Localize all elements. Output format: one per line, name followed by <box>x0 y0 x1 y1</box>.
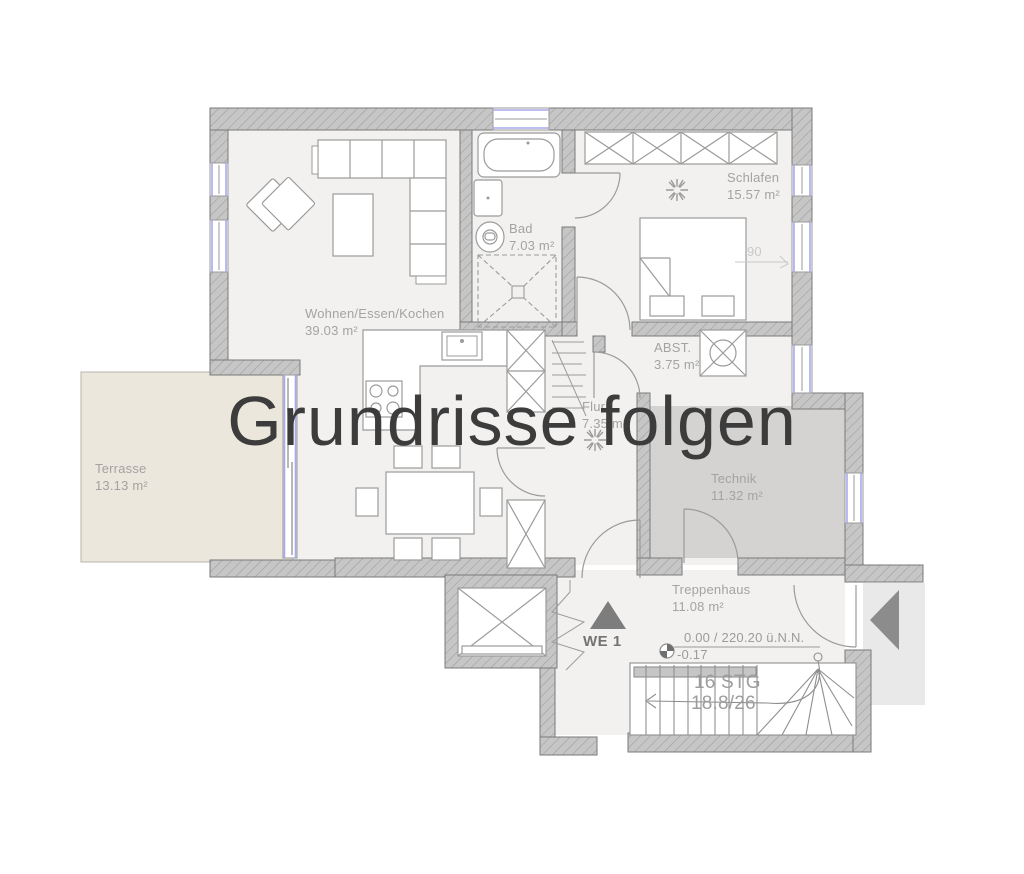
elevation-lower-label: -0.17 <box>677 647 708 664</box>
room-area: 3.75 m² <box>654 357 699 374</box>
room-label-technik: Technik 11.32 m² <box>711 471 763 504</box>
room-name: Terrasse <box>95 461 146 476</box>
room-area: 39.03 m² <box>305 323 444 340</box>
elevation-upper-label: 0.00 / 220.20 ü.N.N. <box>684 630 804 647</box>
room-label-terrasse: Terrasse 13.13 m² <box>95 461 148 494</box>
room-name: Bad <box>509 221 533 236</box>
room-area: 15.57 m² <box>727 187 780 204</box>
window-icon <box>210 220 228 272</box>
room-area: 11.08 m² <box>672 599 750 616</box>
toilet-icon <box>476 222 504 252</box>
window-icon <box>792 222 812 272</box>
room-label-wohnen: Wohnen/Essen/Kochen 39.03 m² <box>305 306 444 339</box>
room-label-bad: Bad 7.03 m² <box>509 221 554 254</box>
washbasin-icon <box>474 180 502 216</box>
stairs-dimension-label: 18.8/26 <box>691 692 756 716</box>
coffee-table <box>333 194 373 256</box>
wardrobe-icon <box>585 132 777 164</box>
floor-plan: Wohnen/Essen/Kochen 39.03 m² Bad 7.03 m²… <box>0 0 1024 874</box>
bathtub-icon <box>478 133 560 177</box>
room-label-abst: ABST. 3.75 m² <box>654 340 699 373</box>
room-area: 11.32 m² <box>711 488 763 505</box>
room-name: Wohnen/Essen/Kochen <box>305 306 444 321</box>
unit-marker-label: WE 1 <box>583 632 622 651</box>
room-label-schlafen: Schlafen 15.57 m² <box>727 170 780 203</box>
room-name: Schlafen <box>727 170 779 185</box>
window-icon <box>493 108 549 130</box>
door-width-dimension: 90 <box>747 244 762 261</box>
bed <box>640 218 746 320</box>
room-name: Technik <box>711 471 756 486</box>
room-name: Treppenhaus <box>672 582 750 597</box>
room-area: 7.03 m² <box>509 238 554 255</box>
window-icon <box>792 165 812 196</box>
watermark-text: Grundrisse folgen <box>0 381 1024 461</box>
room-area: 13.13 m² <box>95 478 148 495</box>
washing-machine-icon <box>700 330 746 376</box>
window-icon <box>845 473 863 523</box>
sun-light-icon <box>666 179 688 201</box>
window-icon <box>210 163 228 196</box>
elevator-icon <box>458 588 546 656</box>
sink-icon <box>442 332 482 360</box>
room-name: ABST. <box>654 340 691 355</box>
room-label-treppenhaus: Treppenhaus 11.08 m² <box>672 582 750 615</box>
